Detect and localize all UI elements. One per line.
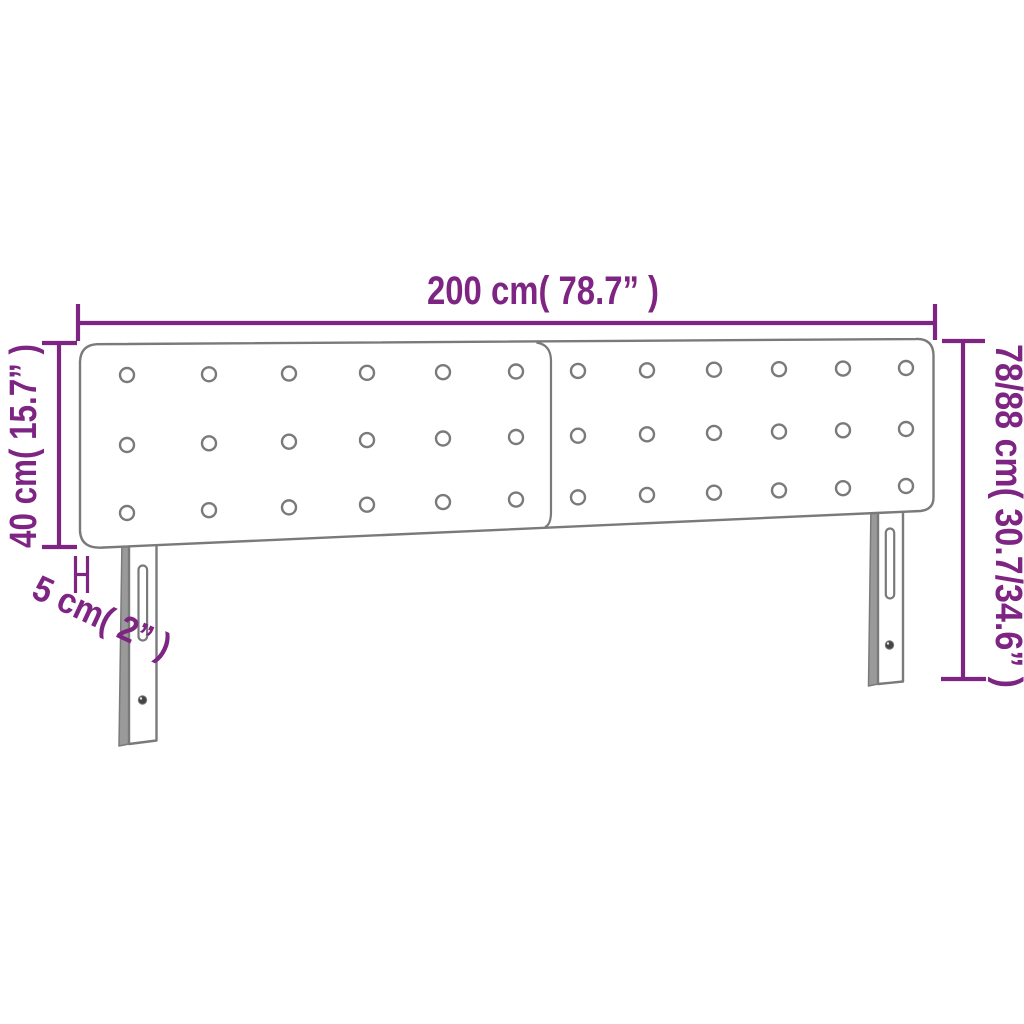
tufting-button bbox=[640, 427, 654, 441]
tufting-button bbox=[360, 366, 374, 380]
panel-height-dimension-label: 40 cm( 15.7” ) bbox=[3, 344, 45, 548]
right-leg-side-face bbox=[869, 505, 879, 686]
left-leg-screw-glint bbox=[140, 697, 142, 699]
tufting-button bbox=[571, 364, 585, 378]
width-dimension: 200 cm( 78.7” ) bbox=[78, 269, 935, 341]
tufting-button bbox=[202, 503, 216, 517]
tufting-button bbox=[202, 367, 216, 381]
tufting-button bbox=[202, 436, 216, 450]
panel-height-dimension: 40 cm( 15.7” ) bbox=[3, 343, 77, 548]
tufting-button bbox=[120, 506, 134, 520]
headboard-dimension-diagram: 200 cm( 78.7” ) 40 cm( 15.7” ) 78/88 cm(… bbox=[0, 0, 1024, 1024]
tufting-button bbox=[707, 426, 721, 440]
tufting-button bbox=[899, 422, 913, 436]
tufting-button bbox=[509, 365, 523, 379]
width-dimension-label: 200 cm( 78.7” ) bbox=[427, 269, 659, 313]
right-leg-front-face bbox=[878, 504, 903, 684]
diagram-svg: 200 cm( 78.7” ) 40 cm( 15.7” ) 78/88 cm(… bbox=[0, 0, 1024, 1024]
tufting-button bbox=[282, 500, 296, 514]
tufting-button bbox=[707, 486, 721, 500]
tufting-button bbox=[282, 435, 296, 449]
total-height-dimension: 78/88 cm( 30.7/34.6” ) bbox=[941, 341, 1024, 688]
tufting-button bbox=[772, 425, 786, 439]
tufting-button bbox=[360, 498, 374, 512]
tufting-button bbox=[509, 430, 523, 444]
left-leg-screw bbox=[138, 696, 146, 704]
right-leg bbox=[869, 504, 904, 686]
tufting-button bbox=[640, 363, 654, 377]
tufting-button bbox=[436, 495, 450, 509]
tufting-button bbox=[836, 362, 850, 376]
tufting-button bbox=[509, 493, 523, 507]
tufting-button bbox=[436, 365, 450, 379]
tufting-button bbox=[120, 438, 134, 452]
tufting-button bbox=[571, 490, 585, 504]
tufting-button bbox=[899, 361, 913, 375]
tufting-button bbox=[360, 433, 374, 447]
tufting-button bbox=[571, 429, 585, 443]
tufting-button bbox=[772, 483, 786, 497]
right-leg-screw bbox=[885, 641, 893, 649]
tufting-button bbox=[772, 362, 786, 376]
right-leg-screw-glint bbox=[887, 642, 889, 644]
tufting-button bbox=[707, 363, 721, 377]
tufting-button bbox=[836, 423, 850, 437]
tufting-button bbox=[282, 367, 296, 381]
tufting-button bbox=[436, 432, 450, 446]
tufting-button bbox=[899, 479, 913, 493]
tufting-button bbox=[640, 488, 654, 502]
tufting-button bbox=[120, 368, 134, 382]
tufting-button bbox=[836, 481, 850, 495]
total-height-dimension-label: 78/88 cm( 30.7/34.6” ) bbox=[987, 344, 1024, 688]
